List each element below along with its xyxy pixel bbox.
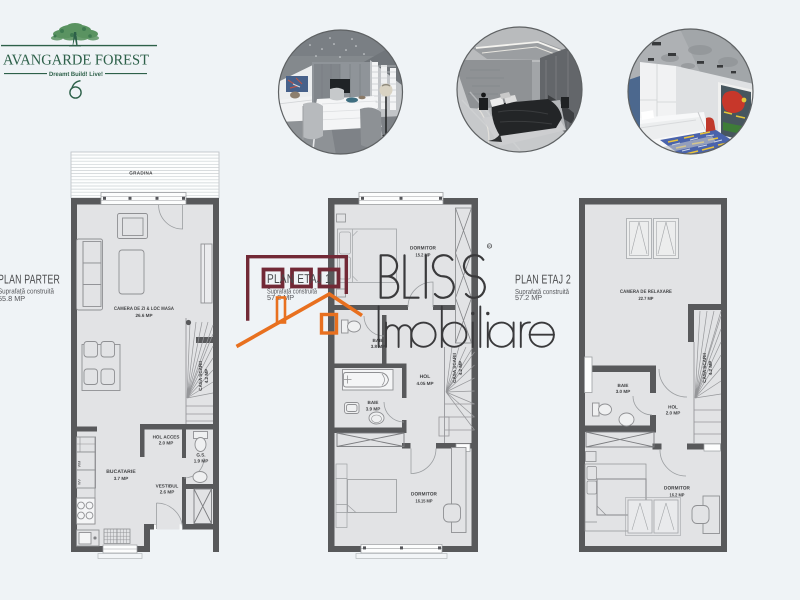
- svg-text:VESTIBUL: VESTIBUL: [156, 484, 179, 489]
- svg-text:PLAN ETAJ 2: PLAN ETAJ 2: [515, 272, 571, 287]
- svg-text:4.2 MP: 4.2 MP: [458, 361, 463, 376]
- svg-text:CASA SCARII: CASA SCARII: [198, 361, 203, 391]
- svg-text:2.6 MP: 2.6 MP: [160, 490, 175, 495]
- svg-text:AVANGARDE FOREST: AVANGARDE FOREST: [3, 53, 149, 69]
- svg-text:CAMERA DE RELAXARE: CAMERA DE RELAXARE: [620, 289, 672, 295]
- svg-text:Dreamt Build! Live!: Dreamt Build! Live!: [49, 71, 103, 78]
- svg-text:BUCATARIE: BUCATARIE: [106, 469, 136, 475]
- svg-text:15.2 MP: 15.2 MP: [416, 253, 431, 258]
- svg-text:22.7 MP: 22.7 MP: [639, 296, 654, 301]
- svg-text:CASA SCARII: CASA SCARII: [452, 353, 457, 383]
- svg-text:WM: WM: [78, 461, 82, 467]
- svg-text:57.2 MP: 57.2 MP: [515, 293, 542, 302]
- svg-text:3.9 MP: 3.9 MP: [366, 407, 381, 412]
- svg-text:HOL: HOL: [420, 374, 431, 380]
- svg-text:HOL ACCES: HOL ACCES: [153, 435, 180, 440]
- svg-text:G.S.: G.S.: [196, 453, 205, 458]
- svg-text:4.05 MP: 4.05 MP: [416, 381, 433, 386]
- svg-text:PLAN ETAJ 1: PLAN ETAJ 1: [267, 271, 331, 286]
- svg-text:1.9 MP: 1.9 MP: [194, 459, 209, 464]
- svg-text:DORMITOR: DORMITOR: [664, 486, 690, 492]
- svg-text:BAIE: BAIE: [618, 383, 629, 388]
- svg-text:CASA SCARII: CASA SCARII: [702, 353, 707, 383]
- svg-text:4.2 MP: 4.2 MP: [204, 369, 209, 384]
- svg-text:3.7 MP: 3.7 MP: [114, 476, 129, 481]
- svg-text:PLAN PARTER: PLAN PARTER: [0, 272, 60, 287]
- svg-text:26.6 MP: 26.6 MP: [135, 313, 152, 318]
- svg-text:55.8 MP: 55.8 MP: [0, 294, 25, 303]
- svg-text:DORMITOR: DORMITOR: [411, 492, 437, 498]
- svg-text:4.2 MP: 4.2 MP: [708, 361, 713, 376]
- svg-text:WV: WV: [78, 479, 82, 485]
- svg-text:2.0 MP: 2.0 MP: [159, 441, 174, 446]
- svg-text:DORMITOR: DORMITOR: [410, 246, 436, 252]
- svg-text:CAMERA DE ZI & LOC MASA: CAMERA DE ZI & LOC MASA: [114, 306, 174, 312]
- svg-text:2.0 MP: 2.0 MP: [666, 411, 681, 416]
- svg-text:16.15 MP: 16.15 MP: [416, 499, 433, 504]
- svg-text:BAIE: BAIE: [368, 400, 379, 405]
- svg-text:16.2 MP: 16.2 MP: [670, 493, 685, 498]
- svg-text:HOL: HOL: [668, 405, 678, 410]
- svg-text:GRADINA: GRADINA: [129, 171, 153, 176]
- svg-text:3.0 MP: 3.0 MP: [616, 389, 631, 394]
